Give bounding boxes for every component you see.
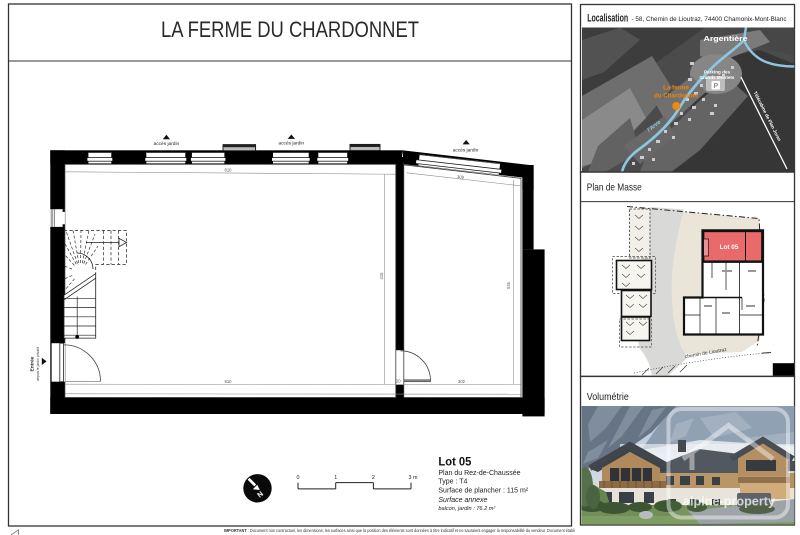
svg-text:Plan de Masse: Plan de Masse <box>587 182 642 194</box>
svg-text:Entrée: Entrée <box>30 356 36 371</box>
svg-text:Plan du Rez-de-Chaussée: Plan du Rez-de-Chaussée <box>438 470 520 477</box>
svg-text:Argentière: Argentière <box>704 34 748 43</box>
svg-text:Parking des: Parking des <box>704 70 730 75</box>
svg-text:Localisation: Localisation <box>587 13 628 25</box>
svg-text:1: 1 <box>334 475 337 481</box>
svg-text:alpine-property: alpine-property <box>683 495 775 509</box>
svg-text:Surface annexe: Surface annexe <box>438 497 487 504</box>
svg-text:415: 415 <box>379 272 384 280</box>
svg-text:Surface de plancher : 115 m²: Surface de plancher : 115 m² <box>438 488 528 495</box>
svg-text:- 58, Chemin de Lioutraz, 7440: - 58, Chemin de Lioutraz, 74400 Chamonix… <box>632 16 787 23</box>
svg-text:du Chardonnet: du Chardonnet <box>654 93 698 100</box>
svg-text:P: P <box>713 83 718 90</box>
svg-text:Lot 05: Lot 05 <box>438 454 471 468</box>
svg-text:546: 546 <box>506 281 511 289</box>
svg-text:balcon, jardin : 76.2 m²: balcon, jardin : 76.2 m² <box>438 506 496 512</box>
svg-text:IMPORTANT : Document non contr: IMPORTANT : Document non contractuel, le… <box>224 528 575 533</box>
svg-text:3 m: 3 m <box>409 475 418 481</box>
svg-text:810: 810 <box>225 168 233 173</box>
svg-text:Lot 05: Lot 05 <box>720 244 739 251</box>
svg-text:Type : T4: Type : T4 <box>438 478 467 485</box>
svg-text:accès jardin: accès jardin <box>154 141 180 147</box>
svg-text:LA FERME DU CHARDONNET: LA FERME DU CHARDONNET <box>161 17 419 42</box>
svg-text:20: 20 <box>396 378 401 383</box>
svg-text:Volumétrie: Volumétrie <box>587 391 629 403</box>
svg-text:La ferme: La ferme <box>663 85 689 92</box>
svg-text:810: 810 <box>225 379 233 384</box>
svg-text:accès jardin: accès jardin <box>453 147 479 153</box>
svg-text:309: 309 <box>457 174 465 180</box>
svg-text:Grands Montets: Grands Montets <box>700 75 735 80</box>
svg-text:2: 2 <box>372 475 375 481</box>
svg-text:302: 302 <box>458 379 466 384</box>
svg-text:0: 0 <box>297 475 300 481</box>
svg-text:depuis le jardin privatif: depuis le jardin privatif <box>36 347 40 381</box>
svg-text:accès jardin: accès jardin <box>278 141 304 147</box>
